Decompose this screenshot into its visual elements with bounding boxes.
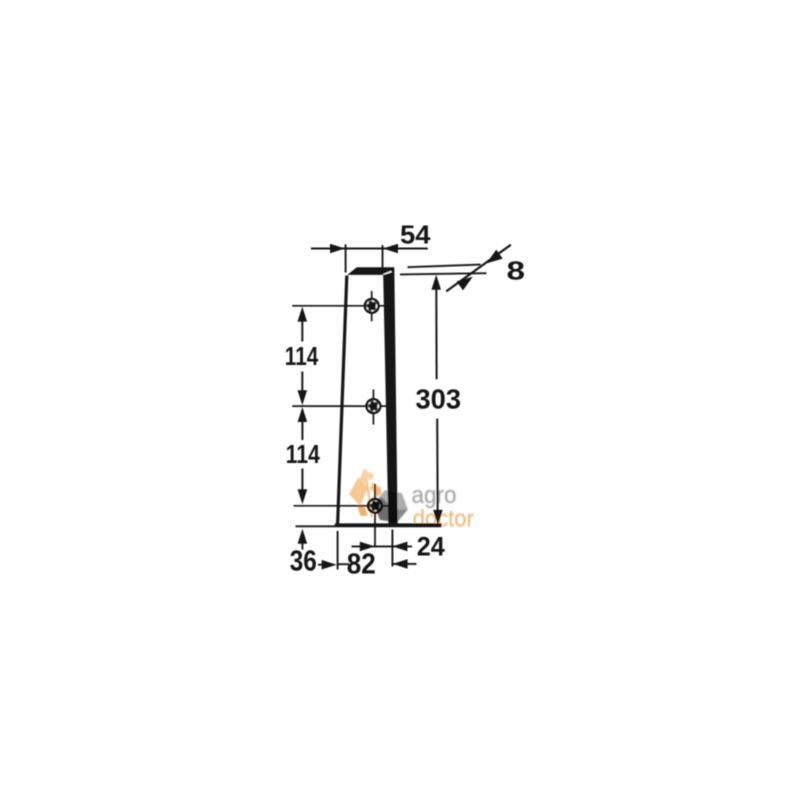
svg-text:82: 82 bbox=[347, 549, 376, 581]
svg-text:54: 54 bbox=[400, 220, 431, 250]
svg-text:303: 303 bbox=[416, 383, 462, 414]
svg-text:114: 114 bbox=[286, 439, 320, 469]
svg-text:36: 36 bbox=[290, 546, 317, 578]
svg-text:24: 24 bbox=[417, 532, 445, 562]
svg-text:8: 8 bbox=[507, 256, 526, 286]
svg-text:114: 114 bbox=[285, 341, 319, 371]
svg-text:doctor: doctor bbox=[413, 505, 474, 532]
